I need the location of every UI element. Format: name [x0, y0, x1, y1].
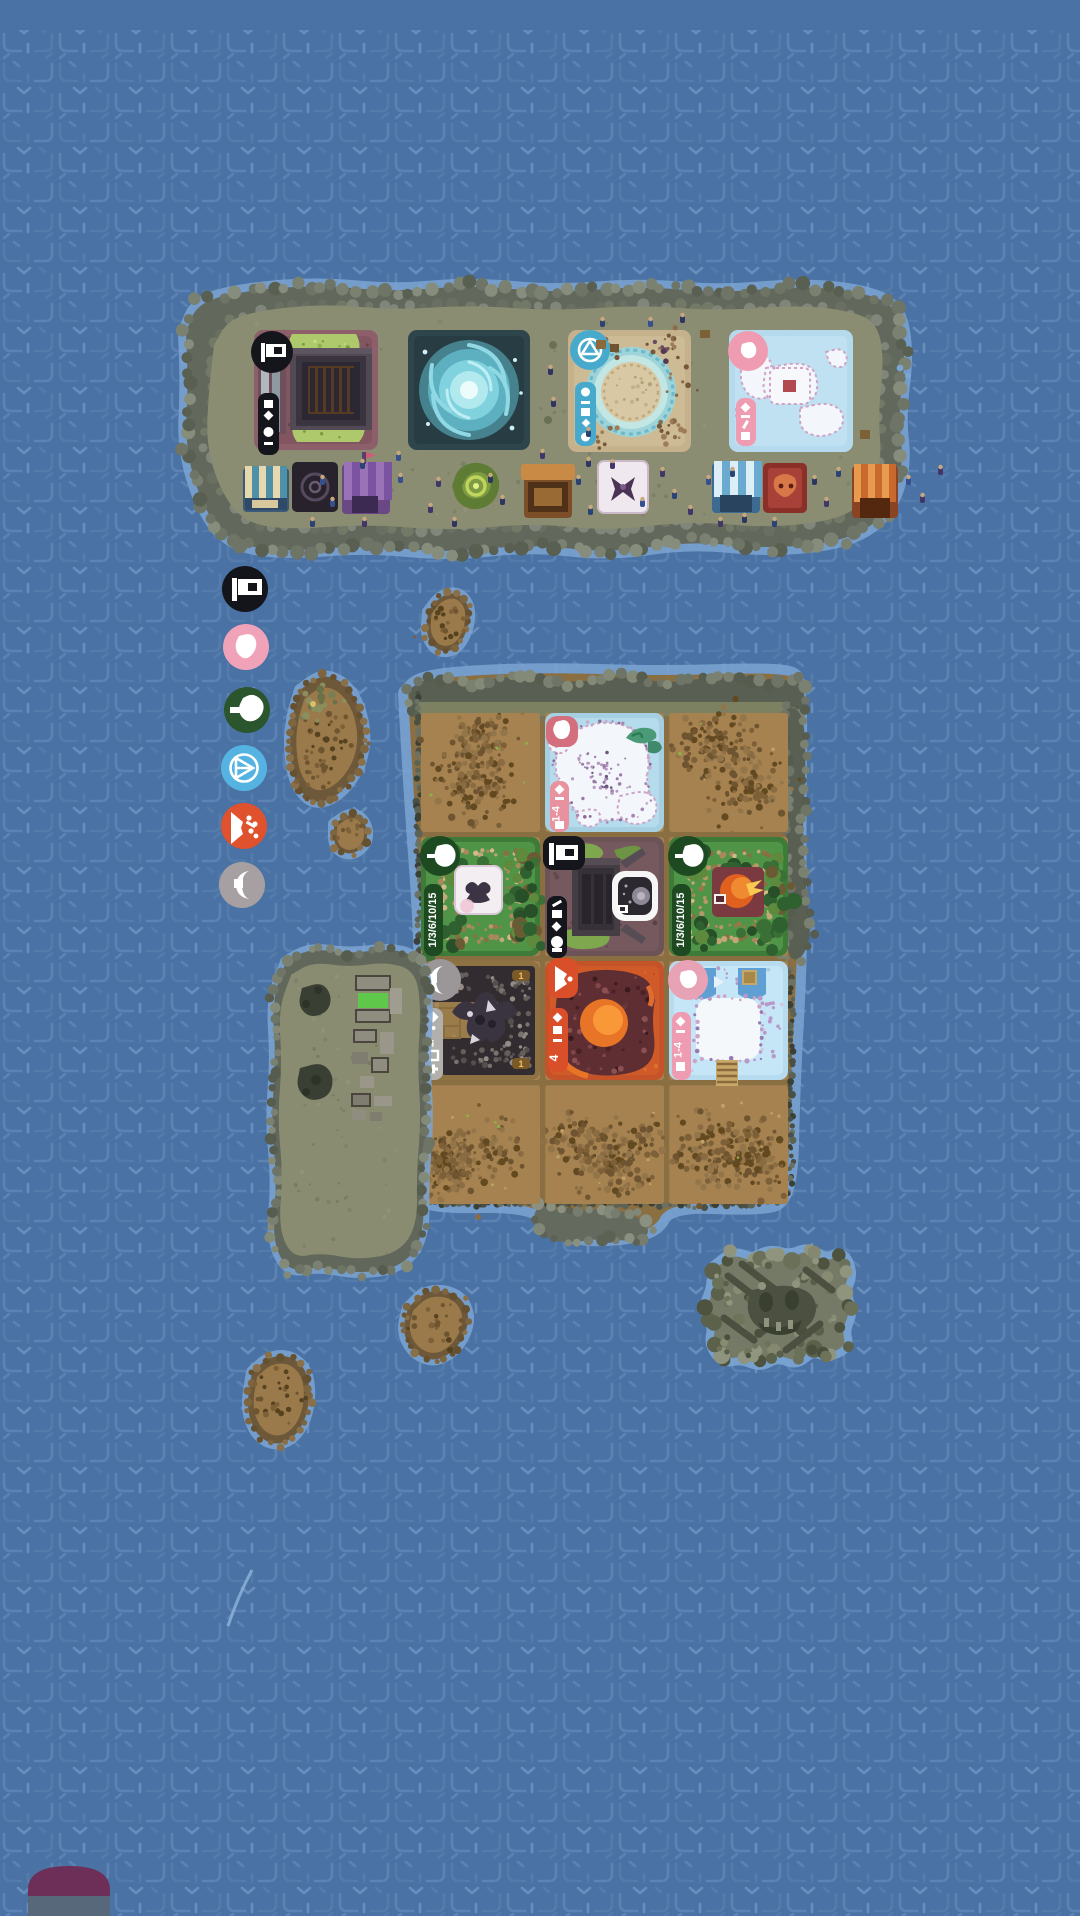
svg-text:4: 4: [547, 1054, 561, 1061]
svg-text:1: 1: [518, 971, 523, 981]
svg-text:1/3/6/10/15: 1/3/6/10/15: [427, 892, 439, 947]
svg-text:1-4: 1-4: [673, 1041, 685, 1058]
svg-text:1/3/6/10/15: 1/3/6/10/15: [675, 892, 687, 947]
svg-text:1-4: 1-4: [551, 805, 563, 822]
svg-text:1: 1: [518, 1059, 523, 1069]
